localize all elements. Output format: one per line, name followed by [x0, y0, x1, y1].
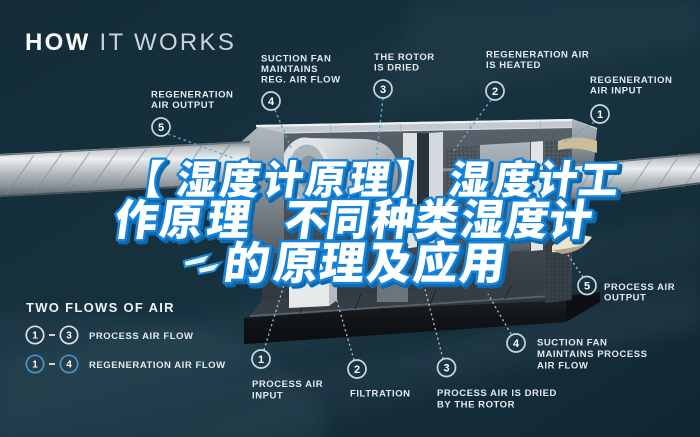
- svg-text:REGENERATION: REGENERATION: [590, 75, 672, 86]
- svg-text:PROCESS AIR IS DRIED: PROCESS AIR IS DRIED: [437, 388, 557, 399]
- svg-text:5: 5: [584, 281, 590, 293]
- svg-text:AIR OUTPUT: AIR OUTPUT: [151, 100, 215, 111]
- svg-text:REGENERATION: REGENERATION: [151, 90, 233, 101]
- svg-text:1: 1: [258, 354, 264, 366]
- svg-text:SUCTION FAN: SUCTION FAN: [261, 54, 331, 65]
- svg-text:THE ROTOR: THE ROTOR: [374, 52, 435, 63]
- svg-text:FILTRATION: FILTRATION: [350, 389, 411, 400]
- svg-text:MAINTAINS: MAINTAINS: [261, 64, 318, 75]
- svg-text:BY THE ROTOR: BY THE ROTOR: [437, 400, 515, 411]
- svg-text:OUTPUT: OUTPUT: [604, 293, 646, 304]
- svg-text:INPUT: INPUT: [252, 391, 283, 402]
- svg-text:TWO FLOWS OF AIR: TWO FLOWS OF AIR: [26, 300, 175, 315]
- svg-text:2: 2: [492, 86, 498, 98]
- svg-text:PROCESS AIR: PROCESS AIR: [252, 379, 323, 390]
- svg-text:HOW IT WORKS: HOW IT WORKS: [25, 29, 236, 56]
- svg-text:1: 1: [32, 331, 38, 342]
- svg-text:REGENERATION AIR FLOW: REGENERATION AIR FLOW: [89, 360, 226, 371]
- svg-text:1: 1: [597, 109, 603, 121]
- svg-text:PROCESS AIR FLOW: PROCESS AIR FLOW: [89, 331, 194, 342]
- svg-text:PROCESS AIR: PROCESS AIR: [604, 282, 675, 293]
- svg-text:4: 4: [268, 96, 275, 108]
- svg-text:4: 4: [513, 338, 520, 350]
- svg-text:1: 1: [32, 360, 38, 371]
- svg-text:3: 3: [380, 84, 386, 96]
- svg-text:IS HEATED: IS HEATED: [486, 60, 541, 71]
- svg-text:2: 2: [354, 364, 360, 376]
- svg-text:AIR INPUT: AIR INPUT: [590, 86, 642, 97]
- svg-text:3: 3: [66, 331, 72, 342]
- svg-text:MAINTAINS PROCESS: MAINTAINS PROCESS: [537, 349, 648, 360]
- svg-text:5: 5: [158, 122, 164, 134]
- svg-text:3: 3: [443, 363, 449, 375]
- svg-text:REGENERATION AIR: REGENERATION AIR: [486, 50, 589, 61]
- svg-text:IS DRIED: IS DRIED: [374, 63, 420, 74]
- svg-text:SUCTION FAN: SUCTION FAN: [537, 338, 607, 349]
- svg-text:AIR FLOW: AIR FLOW: [537, 361, 588, 372]
- svg-text:4: 4: [66, 360, 72, 371]
- svg-text:REG. AIR FLOW: REG. AIR FLOW: [261, 75, 341, 86]
